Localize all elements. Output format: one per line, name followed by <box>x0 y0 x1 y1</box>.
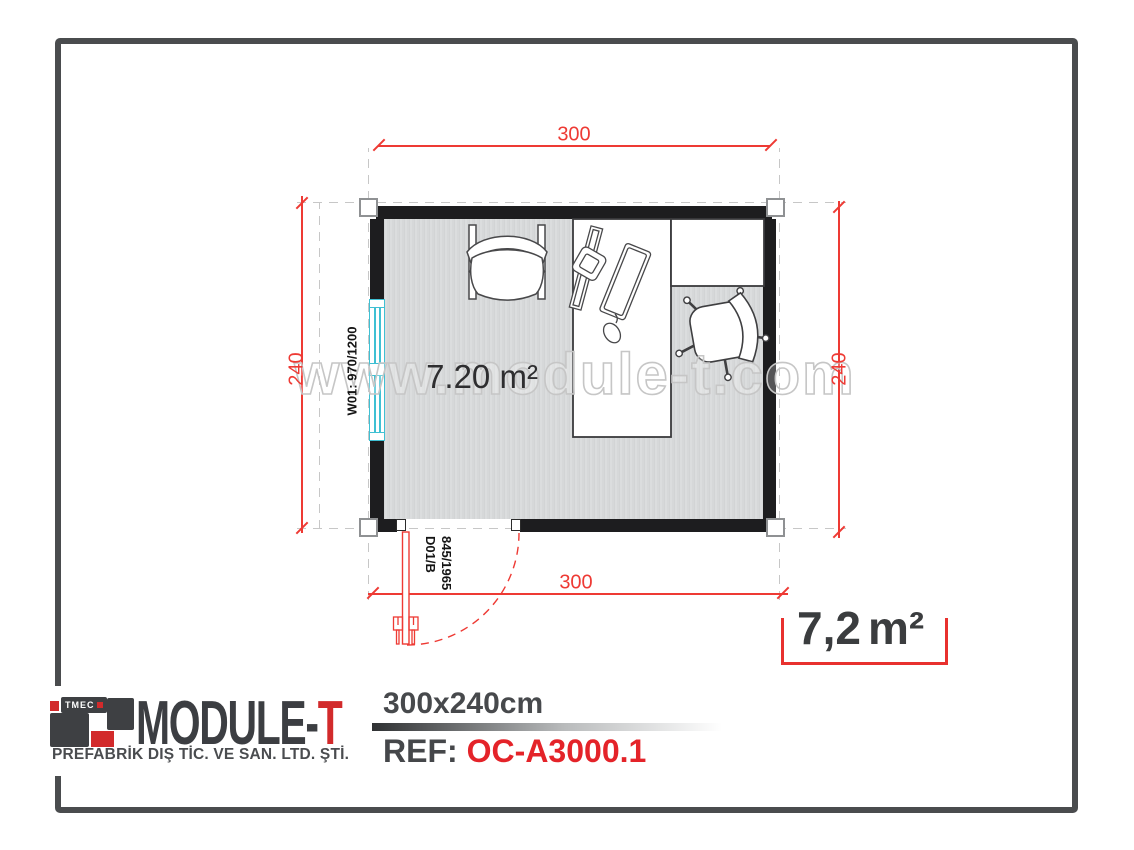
ref-value: OC-A3000.1 <box>467 733 647 769</box>
corner-post <box>766 198 785 217</box>
door-label-size: 845/1965 <box>438 536 454 590</box>
tmec-label: TMEC <box>65 701 95 710</box>
brand-name: MODULE-T <box>136 700 341 748</box>
logo-mark-red-square-2 <box>91 731 114 747</box>
dimension-label-left: 240 <box>286 352 309 385</box>
module-size-text: 300x240cm <box>383 687 543 721</box>
window-label: W01: 970/1200 <box>345 327 360 416</box>
brand-subtitle: PREFABRİK DIŞ TİC. VE SAN. LTD. ŞTİ. <box>52 746 349 764</box>
logo-mark-big-square <box>50 713 89 747</box>
corner-post <box>359 198 378 217</box>
corner-post <box>766 518 785 537</box>
roof-overhang-line <box>319 202 320 529</box>
dimension-label-bottom: 300 <box>559 572 592 595</box>
tmec-red-square <box>97 702 103 708</box>
window-frame-cap <box>369 299 385 308</box>
ref-line: REF:OC-A3000.1 <box>383 733 646 770</box>
grid-line-top <box>297 202 846 203</box>
door-label-code: D01/B <box>422 536 438 590</box>
footer-divider <box>372 723 722 731</box>
ref-label: REF: <box>383 733 458 769</box>
door-label: D01/B 845/1965 <box>422 536 454 590</box>
dimension-label-top: 300 <box>557 124 590 147</box>
logo-mark-red-square <box>50 701 59 711</box>
room-area-label: 7.20 m² <box>426 358 538 396</box>
door-jamb <box>511 519 521 531</box>
area-badge-value: 7,2 <box>797 602 861 654</box>
wall-right <box>763 219 776 532</box>
logo-mark-mid-square <box>107 698 134 730</box>
wall-top <box>376 206 772 219</box>
wall-left-upper <box>370 219 384 299</box>
corner-post <box>359 518 378 537</box>
dimension-label-right: 240 <box>829 352 852 385</box>
area-badge: 7,2m² <box>781 618 948 665</box>
logo-mark-tmec-box: TMEC <box>61 697 107 713</box>
floor-plan-sheet: www.module-t.com 300 300 240 240 7.20 m²… <box>0 0 1134 850</box>
window-mullion <box>369 363 385 376</box>
wall-bottom-right <box>520 519 772 532</box>
area-badge-text: 7,2m² <box>797 601 924 655</box>
window-frame-cap <box>369 432 385 441</box>
door-jamb <box>396 519 406 531</box>
area-badge-unit: m² <box>868 602 924 654</box>
